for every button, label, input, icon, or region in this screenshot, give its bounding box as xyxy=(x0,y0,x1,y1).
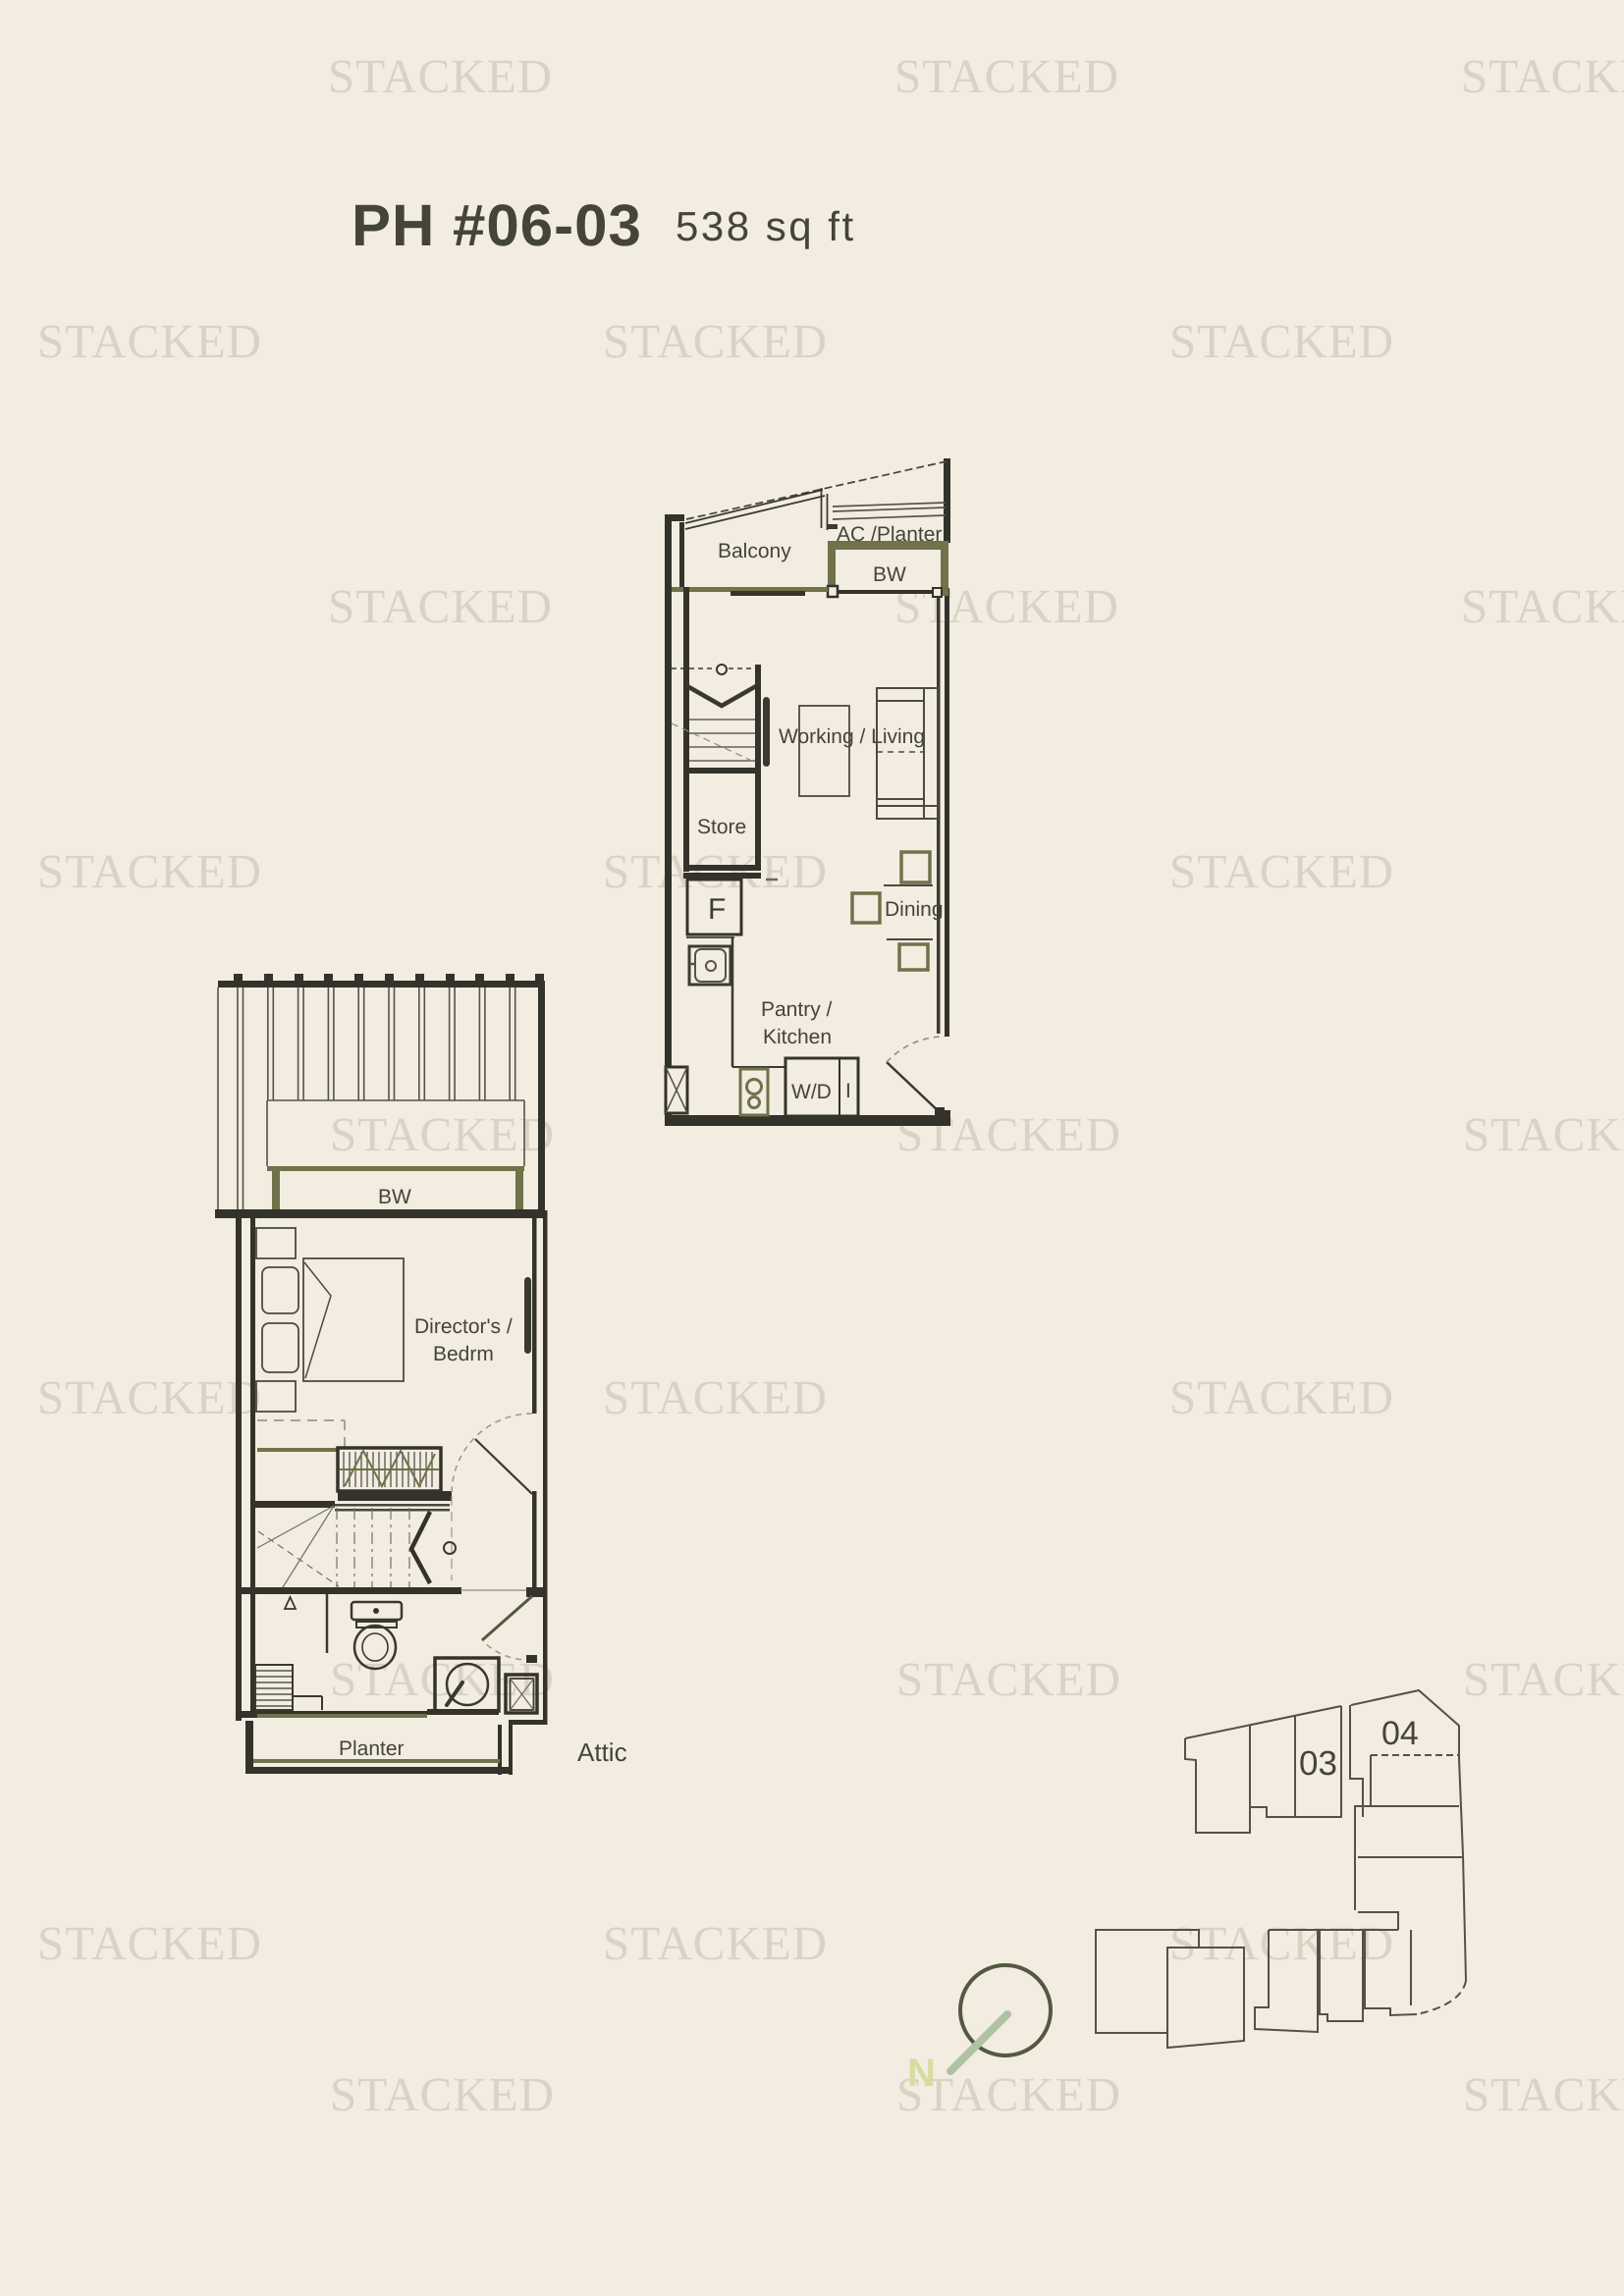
svg-text:STACKED: STACKED xyxy=(330,1107,555,1161)
svg-text:Balcony: Balcony xyxy=(718,540,791,562)
svg-text:STACKED: STACKED xyxy=(37,1370,262,1424)
svg-text:STACKED: STACKED xyxy=(37,314,262,368)
svg-text:STACKED: STACKED xyxy=(894,49,1119,103)
svg-text:538 sq ft: 538 sq ft xyxy=(676,203,856,249)
svg-text:STACKED: STACKED xyxy=(896,1652,1121,1706)
svg-text:STACKED: STACKED xyxy=(37,1916,262,1970)
svg-text:F: F xyxy=(708,893,726,926)
svg-text:STACKED: STACKED xyxy=(328,579,553,633)
svg-text:Director's /: Director's / xyxy=(414,1315,513,1338)
svg-text:Store: Store xyxy=(697,816,746,838)
svg-text:Working / Living: Working / Living xyxy=(779,725,925,748)
svg-text:STACKED: STACKED xyxy=(328,49,553,103)
svg-text:STACKED: STACKED xyxy=(1461,49,1624,103)
svg-text:STACKED: STACKED xyxy=(603,844,828,898)
svg-text:I: I xyxy=(845,1080,851,1102)
svg-text:N: N xyxy=(907,2052,936,2095)
svg-text:STACKED: STACKED xyxy=(1169,1370,1394,1424)
svg-text:STACKED: STACKED xyxy=(894,579,1119,633)
svg-text:STACKED: STACKED xyxy=(1169,844,1394,898)
svg-text:STACKED: STACKED xyxy=(1461,579,1624,633)
svg-text:STACKED: STACKED xyxy=(37,844,262,898)
svg-text:W/D: W/D xyxy=(791,1081,832,1103)
svg-text:Kitchen: Kitchen xyxy=(763,1026,832,1048)
svg-text:Attic: Attic xyxy=(577,1737,627,1767)
svg-text:03: 03 xyxy=(1299,1744,1337,1783)
svg-text:Bedrm: Bedrm xyxy=(433,1343,494,1365)
svg-text:Dining: Dining xyxy=(885,898,944,921)
svg-text:STACKED: STACKED xyxy=(330,2067,555,2121)
svg-text:STACKED: STACKED xyxy=(1463,1107,1624,1161)
svg-text:BW: BW xyxy=(873,563,906,586)
svg-text:Planter: Planter xyxy=(339,1737,405,1760)
svg-text:STACKED: STACKED xyxy=(1463,2067,1624,2121)
svg-text:Pantry /: Pantry / xyxy=(761,998,833,1021)
svg-text:STACKED: STACKED xyxy=(603,1916,828,1970)
svg-text:04: 04 xyxy=(1381,1715,1419,1752)
svg-text:PH #06-03: PH #06-03 xyxy=(352,192,642,258)
svg-text:STACKED: STACKED xyxy=(1463,1652,1624,1706)
svg-text:BW: BW xyxy=(378,1186,411,1208)
svg-text:STACKED: STACKED xyxy=(603,1370,828,1424)
svg-text:STACKED: STACKED xyxy=(1169,1916,1394,1970)
svg-text:STACKED: STACKED xyxy=(603,314,828,368)
svg-text:STACKED: STACKED xyxy=(1169,314,1394,368)
